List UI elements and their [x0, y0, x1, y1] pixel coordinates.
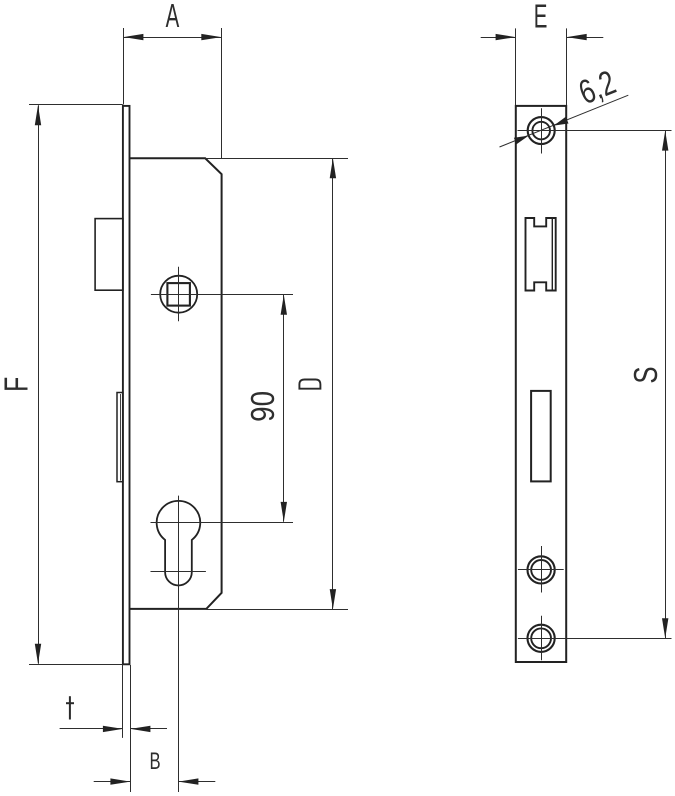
svg-text:E: E [534, 0, 548, 35]
svg-text:B: B [149, 748, 160, 775]
svg-text:90: 90 [245, 391, 282, 422]
svg-text:A: A [166, 0, 180, 34]
svg-text:F: F [0, 377, 35, 392]
svg-text:S: S [628, 366, 665, 383]
